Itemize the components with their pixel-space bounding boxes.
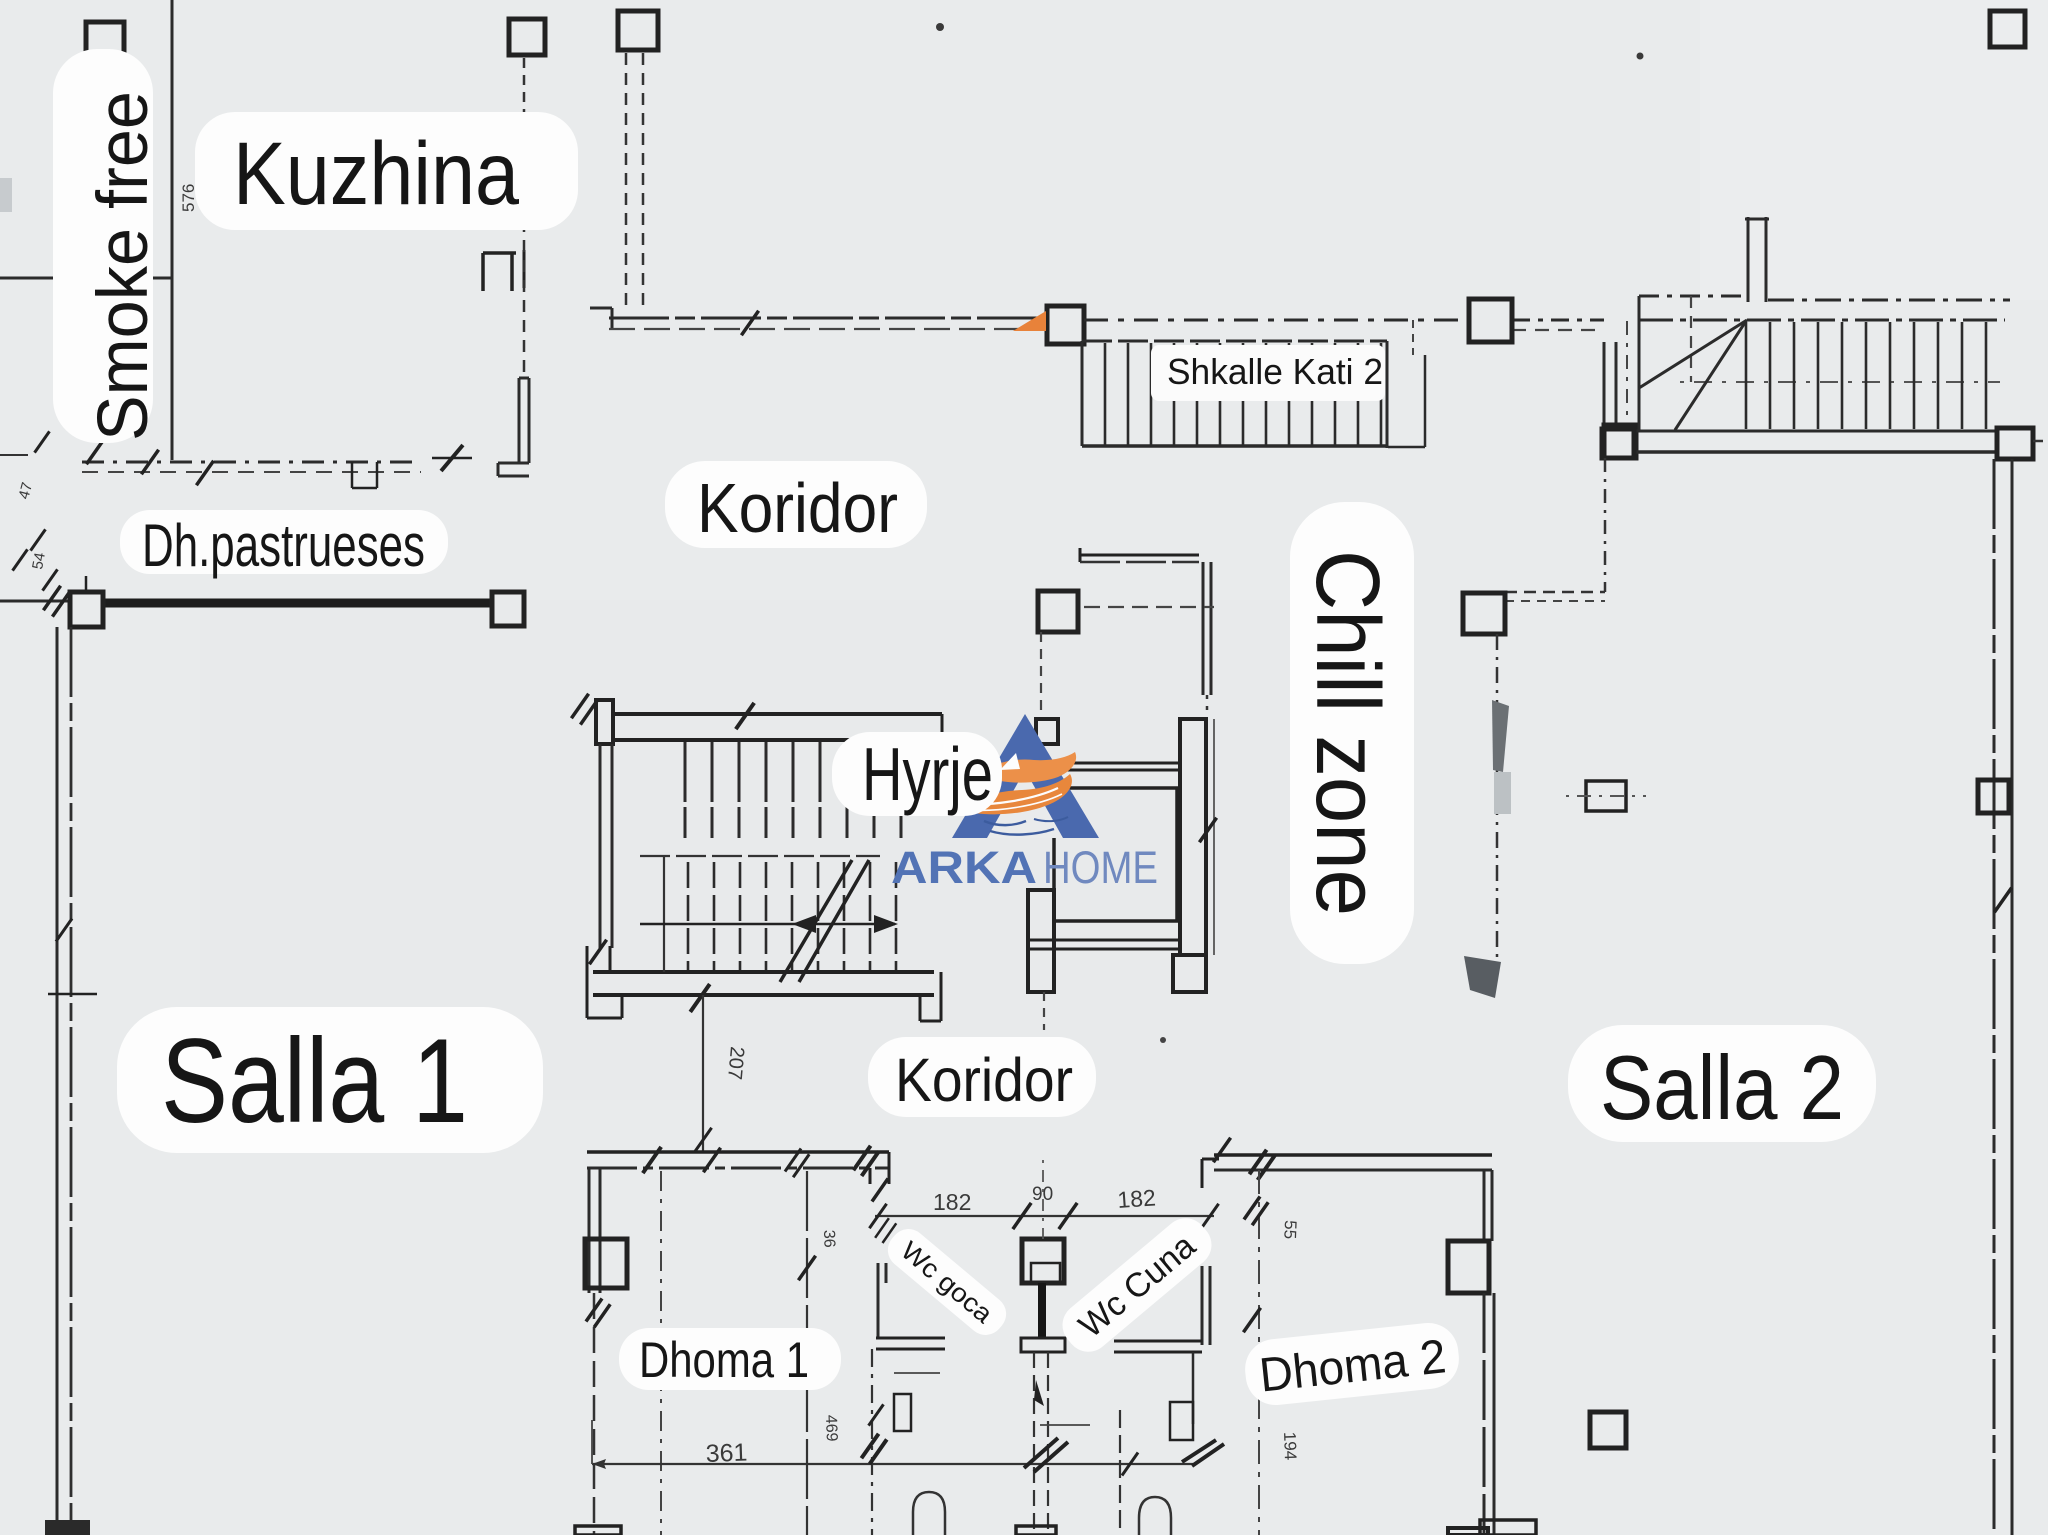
svg-text:Salla 2: Salla 2 xyxy=(1600,1038,1844,1139)
svg-text:Dhoma 1: Dhoma 1 xyxy=(639,1332,809,1388)
svg-text:469: 469 xyxy=(822,1415,840,1442)
svg-text:Smoke free: Smoke free xyxy=(84,91,163,441)
svg-text:Shkalle Kati 2: Shkalle Kati 2 xyxy=(1167,351,1383,392)
svg-text:Hyrje: Hyrje xyxy=(862,732,993,816)
svg-text:55: 55 xyxy=(1280,1220,1300,1240)
svg-text:HOME: HOME xyxy=(1043,842,1158,893)
svg-text:Dh.pastrueses: Dh.pastrueses xyxy=(142,512,425,579)
svg-text:182: 182 xyxy=(1117,1184,1157,1213)
svg-text:361: 361 xyxy=(705,1439,748,1468)
svg-text:207: 207 xyxy=(723,1046,748,1081)
svg-text:36: 36 xyxy=(820,1230,838,1248)
svg-text:Salla 1: Salla 1 xyxy=(161,1014,468,1148)
svg-text:182: 182 xyxy=(933,1189,971,1215)
svg-text:Koridor: Koridor xyxy=(697,469,898,547)
svg-text:ARKA: ARKA xyxy=(891,842,1037,893)
svg-text:Kuzhina: Kuzhina xyxy=(233,123,519,223)
svg-text:54: 54 xyxy=(29,551,49,570)
svg-text:Koridor: Koridor xyxy=(895,1046,1073,1114)
svg-text:Chill zone: Chill zone xyxy=(1297,550,1397,916)
svg-text:194: 194 xyxy=(1280,1431,1300,1460)
